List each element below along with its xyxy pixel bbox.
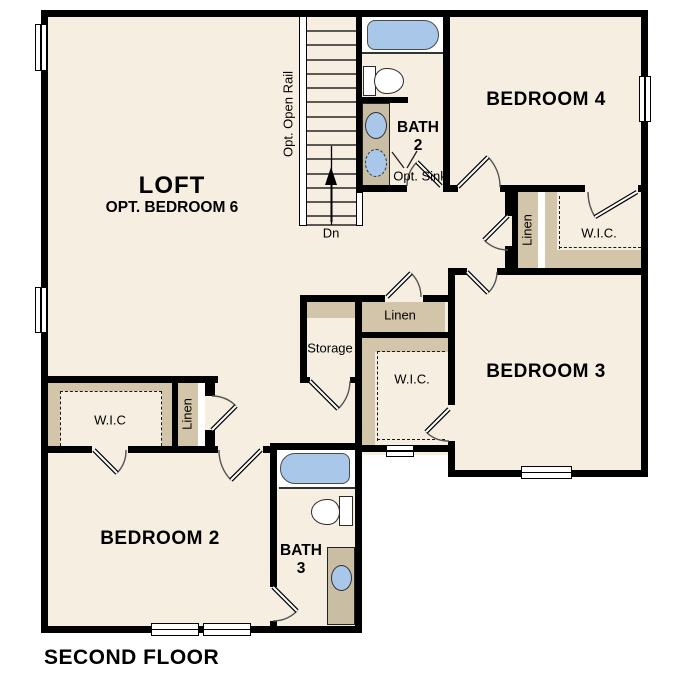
- window: [35, 287, 47, 333]
- wall: [172, 383, 178, 446]
- wic-bedroom3-shelf-left: [362, 338, 375, 445]
- linen-bedroom2-shelf-edge: [198, 383, 205, 446]
- loft-sublabel: OPT. BEDROOM 6: [106, 199, 239, 217]
- wic-bedroom4-dash-left: [559, 196, 560, 249]
- bath2-number: 2: [414, 137, 423, 155]
- linen-hall-label: Linen: [521, 214, 536, 246]
- bath3-label: BATH: [280, 542, 322, 560]
- storage-shelf: [307, 302, 355, 318]
- bathtub3-icon: [280, 453, 350, 484]
- wall: [300, 295, 385, 302]
- wall: [505, 192, 512, 216]
- wall: [205, 383, 215, 396]
- bedroom2-label: BEDROOM 2: [100, 528, 220, 550]
- wall: [500, 185, 585, 192]
- wall: [270, 443, 277, 587]
- wall: [448, 441, 455, 452]
- wall: [497, 268, 648, 275]
- wall: [300, 377, 310, 383]
- toilet3-bowl-icon: [311, 499, 340, 525]
- window: [151, 623, 199, 636]
- linen-center-label: Linen: [384, 309, 416, 324]
- wic-bedroom4-shelf-bottom: [545, 250, 641, 268]
- wall: [41, 376, 218, 383]
- wic-bedroom4-dash-bottom: [559, 247, 641, 248]
- loft-label: LOFT: [139, 172, 206, 200]
- wall: [41, 626, 362, 633]
- wall: [128, 446, 218, 453]
- stair-rail-left: [299, 14, 307, 226]
- wall: [448, 268, 455, 405]
- wic-bedroom3-dash-top: [377, 351, 445, 352]
- bath3-sink-icon: [331, 565, 352, 591]
- stair-arrow-icon: [325, 167, 337, 185]
- opt-sink-label: Opt. Sink: [393, 170, 446, 185]
- bath3-tub-wall-line: [279, 487, 355, 489]
- wall: [512, 192, 518, 268]
- window: [639, 76, 651, 122]
- bath2-tub-wall-line: [362, 52, 443, 54]
- bath2-optional-sink-icon: [365, 149, 387, 177]
- wall: [362, 332, 448, 338]
- wall: [356, 17, 362, 192]
- floor-plan: LOFT OPT. BEDROOM 6 BEDROOM 4 BEDROOM 3 …: [0, 0, 687, 687]
- storage-label: Storage: [307, 342, 353, 357]
- wic-bedroom2-label: W.I.C: [94, 414, 126, 429]
- toilet3-tank-icon: [339, 496, 353, 526]
- bath3-number: 3: [297, 560, 306, 578]
- window: [35, 24, 47, 71]
- wic-bedroom3-shelf-top: [362, 338, 448, 352]
- wall: [638, 185, 648, 192]
- window: [386, 445, 414, 457]
- bathtub-icon: [367, 20, 439, 50]
- wic-bedroom4-label: W.I.C.: [581, 227, 616, 242]
- stair-rail-right: [356, 192, 363, 226]
- plan-title: SECOND FLOOR: [44, 646, 219, 670]
- wall: [443, 185, 458, 192]
- bedroom3-label: BEDROOM 3: [486, 361, 606, 383]
- window: [203, 623, 251, 636]
- stairs-down-label: Dn: [323, 227, 340, 242]
- wall: [41, 10, 648, 17]
- linen-hall-shelf-edge: [538, 192, 545, 268]
- wall: [356, 97, 408, 103]
- bath2-label: BATH: [397, 119, 439, 137]
- wall: [41, 446, 92, 453]
- opt-open-rail-label: Opt. Open Rail: [282, 71, 297, 157]
- wic-bedroom3-label: W.I.C.: [394, 373, 429, 388]
- bath2-sink-icon: [365, 112, 387, 139]
- linen-bedroom2-label: Linen: [181, 398, 196, 430]
- wall: [205, 430, 215, 446]
- wall: [270, 621, 277, 633]
- wall: [300, 295, 307, 383]
- wall: [355, 295, 362, 445]
- wall: [270, 443, 362, 450]
- wic-bedroom3-dash-left: [377, 351, 378, 441]
- wic-bedroom3-dash-bottom: [377, 439, 445, 440]
- wall: [356, 185, 407, 192]
- wall: [423, 295, 448, 302]
- wall: [355, 445, 362, 633]
- bedroom4-label: BEDROOM 4: [486, 89, 606, 111]
- window: [521, 466, 572, 479]
- wall: [443, 17, 450, 192]
